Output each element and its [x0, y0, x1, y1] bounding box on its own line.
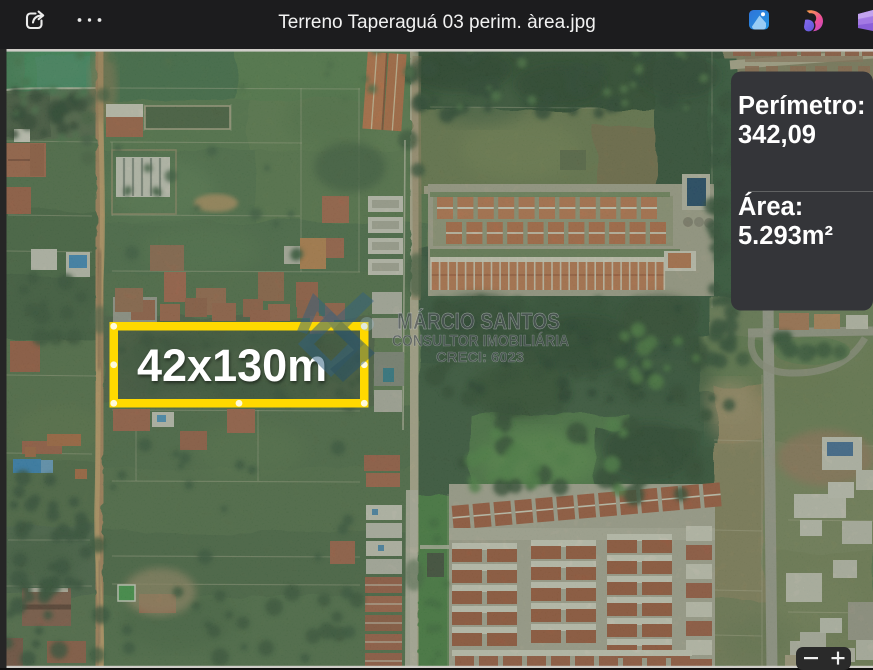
svg-text:CONSULTOR IMOBILIÁRIA: CONSULTOR IMOBILIÁRIA: [392, 333, 569, 350]
svg-text:342,09: 342,09: [738, 121, 816, 149]
svg-text:Perímetro:: Perímetro:: [738, 92, 866, 120]
svg-text:Terreno Taperaguá 03 perim. àr: Terreno Taperaguá 03 perim. àrea.jpg: [278, 12, 596, 33]
svg-text:5.293m²: 5.293m²: [738, 222, 833, 250]
svg-text:CRECI: 6023: CRECI: 6023: [436, 349, 524, 366]
svg-text:42x130m: 42x130m: [137, 340, 327, 391]
svg-text:MÁRCIO SANTOS: MÁRCIO SANTOS: [397, 307, 560, 334]
svg-text:Área:: Área:: [738, 192, 803, 221]
